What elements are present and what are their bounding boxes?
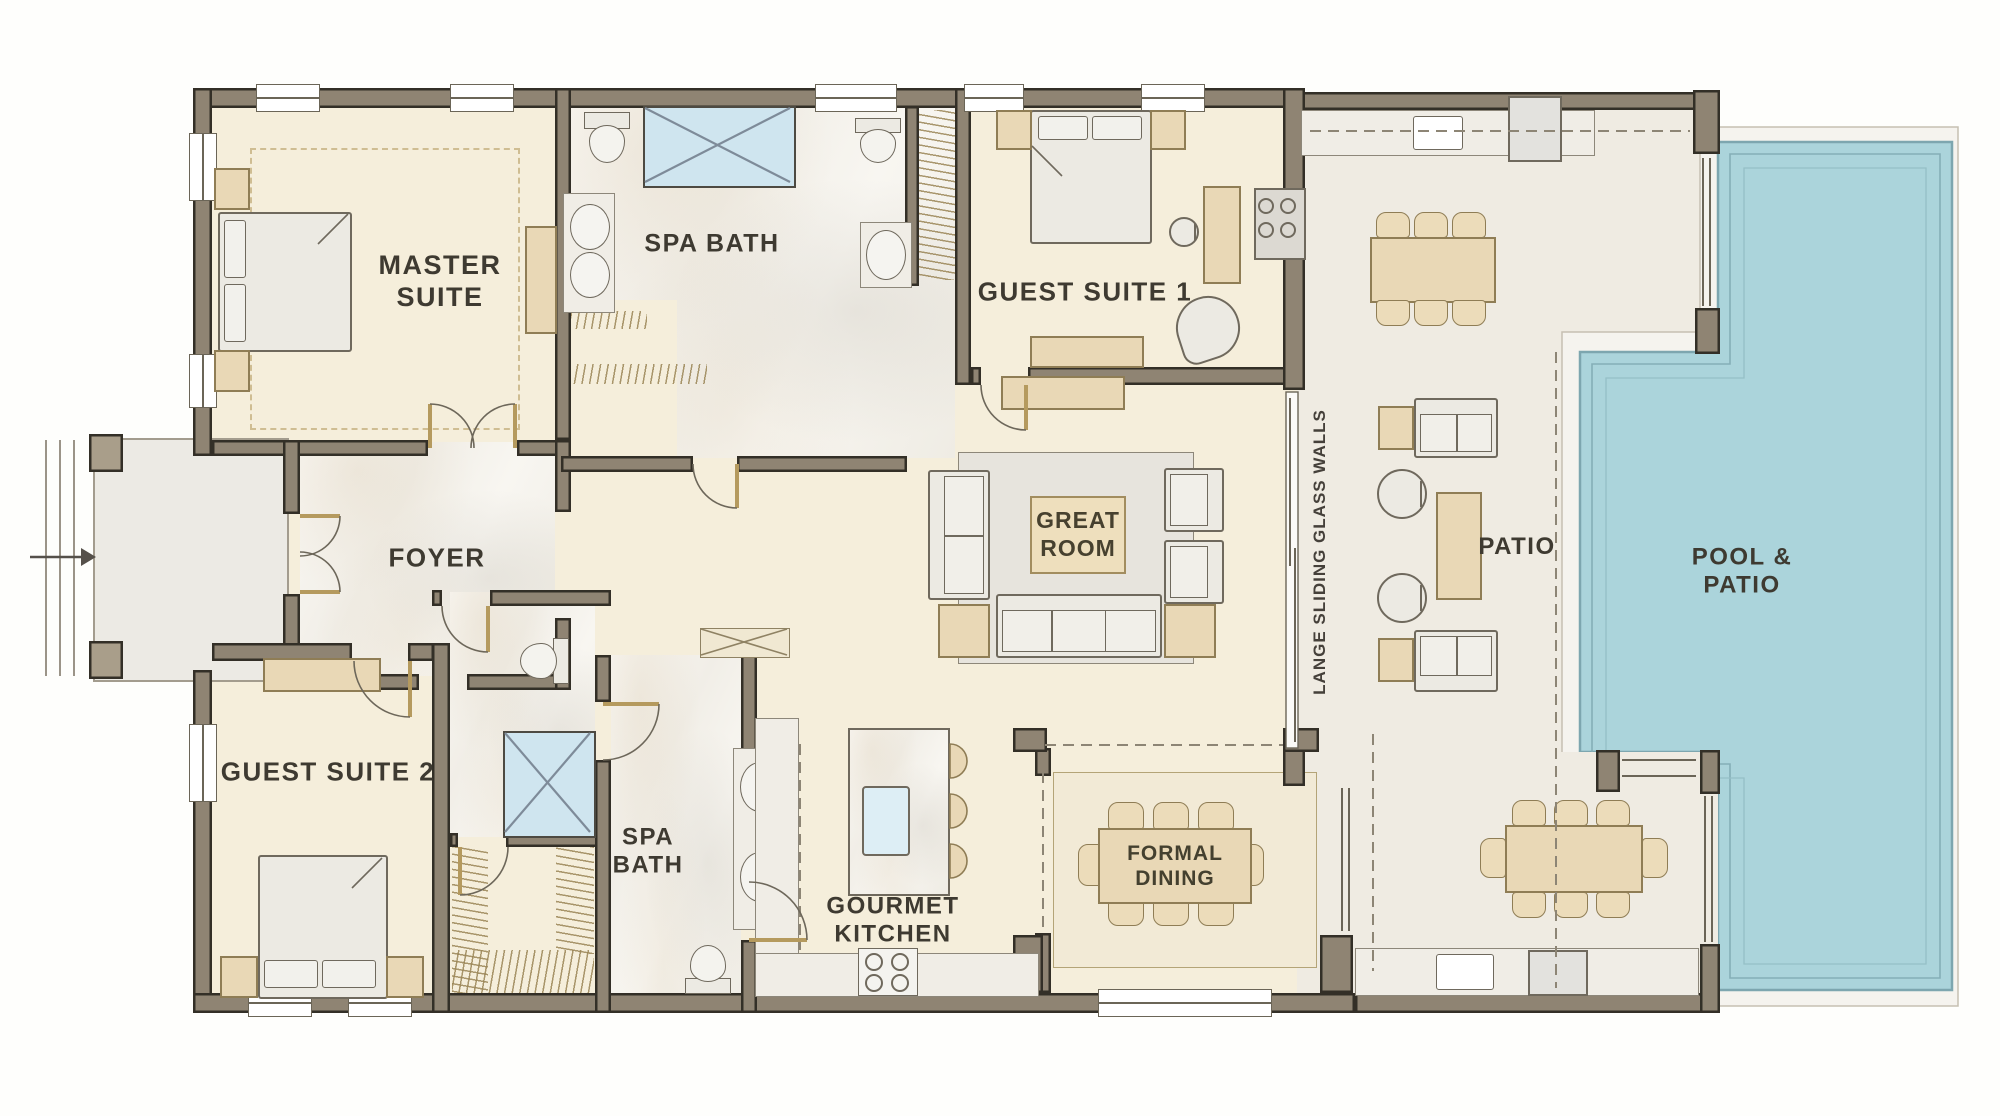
island-stools bbox=[950, 744, 967, 878]
floor-plan: FORMAL DINING bbox=[0, 0, 2000, 1116]
cooktop-burners bbox=[866, 199, 1295, 991]
label-great-room: GREATROOM bbox=[1030, 496, 1126, 574]
label-guest-suite-2: GUEST SUITE 2 bbox=[221, 757, 436, 788]
label-foyer: FOYER bbox=[388, 543, 485, 574]
patio-swivel-chairs bbox=[1378, 470, 1426, 622]
dashed-lines bbox=[800, 131, 1690, 988]
label-patio: PATIO bbox=[1478, 533, 1555, 561]
label-sliding-glass-note: LANGE SLIDING GLASS WALLS bbox=[1310, 409, 1330, 695]
shower-x-marks bbox=[505, 108, 790, 832]
label-master-suite: MASTERSUITE bbox=[379, 250, 502, 314]
entry-arrow-icon bbox=[30, 548, 96, 566]
label-pool-patio: POOL &PATIO bbox=[1692, 544, 1793, 601]
label-guest-suite-1: GUEST SUITE 1 bbox=[978, 277, 1193, 308]
label-spa-bath-upper: SPA BATH bbox=[644, 229, 779, 259]
linen-x-mark bbox=[701, 629, 787, 655]
guest1-desk-chair bbox=[1170, 218, 1198, 246]
label-gourmet-kitchen: GOURMETKITCHEN bbox=[826, 893, 959, 950]
label-spa-bath-lower: SPABATH bbox=[613, 824, 684, 881]
